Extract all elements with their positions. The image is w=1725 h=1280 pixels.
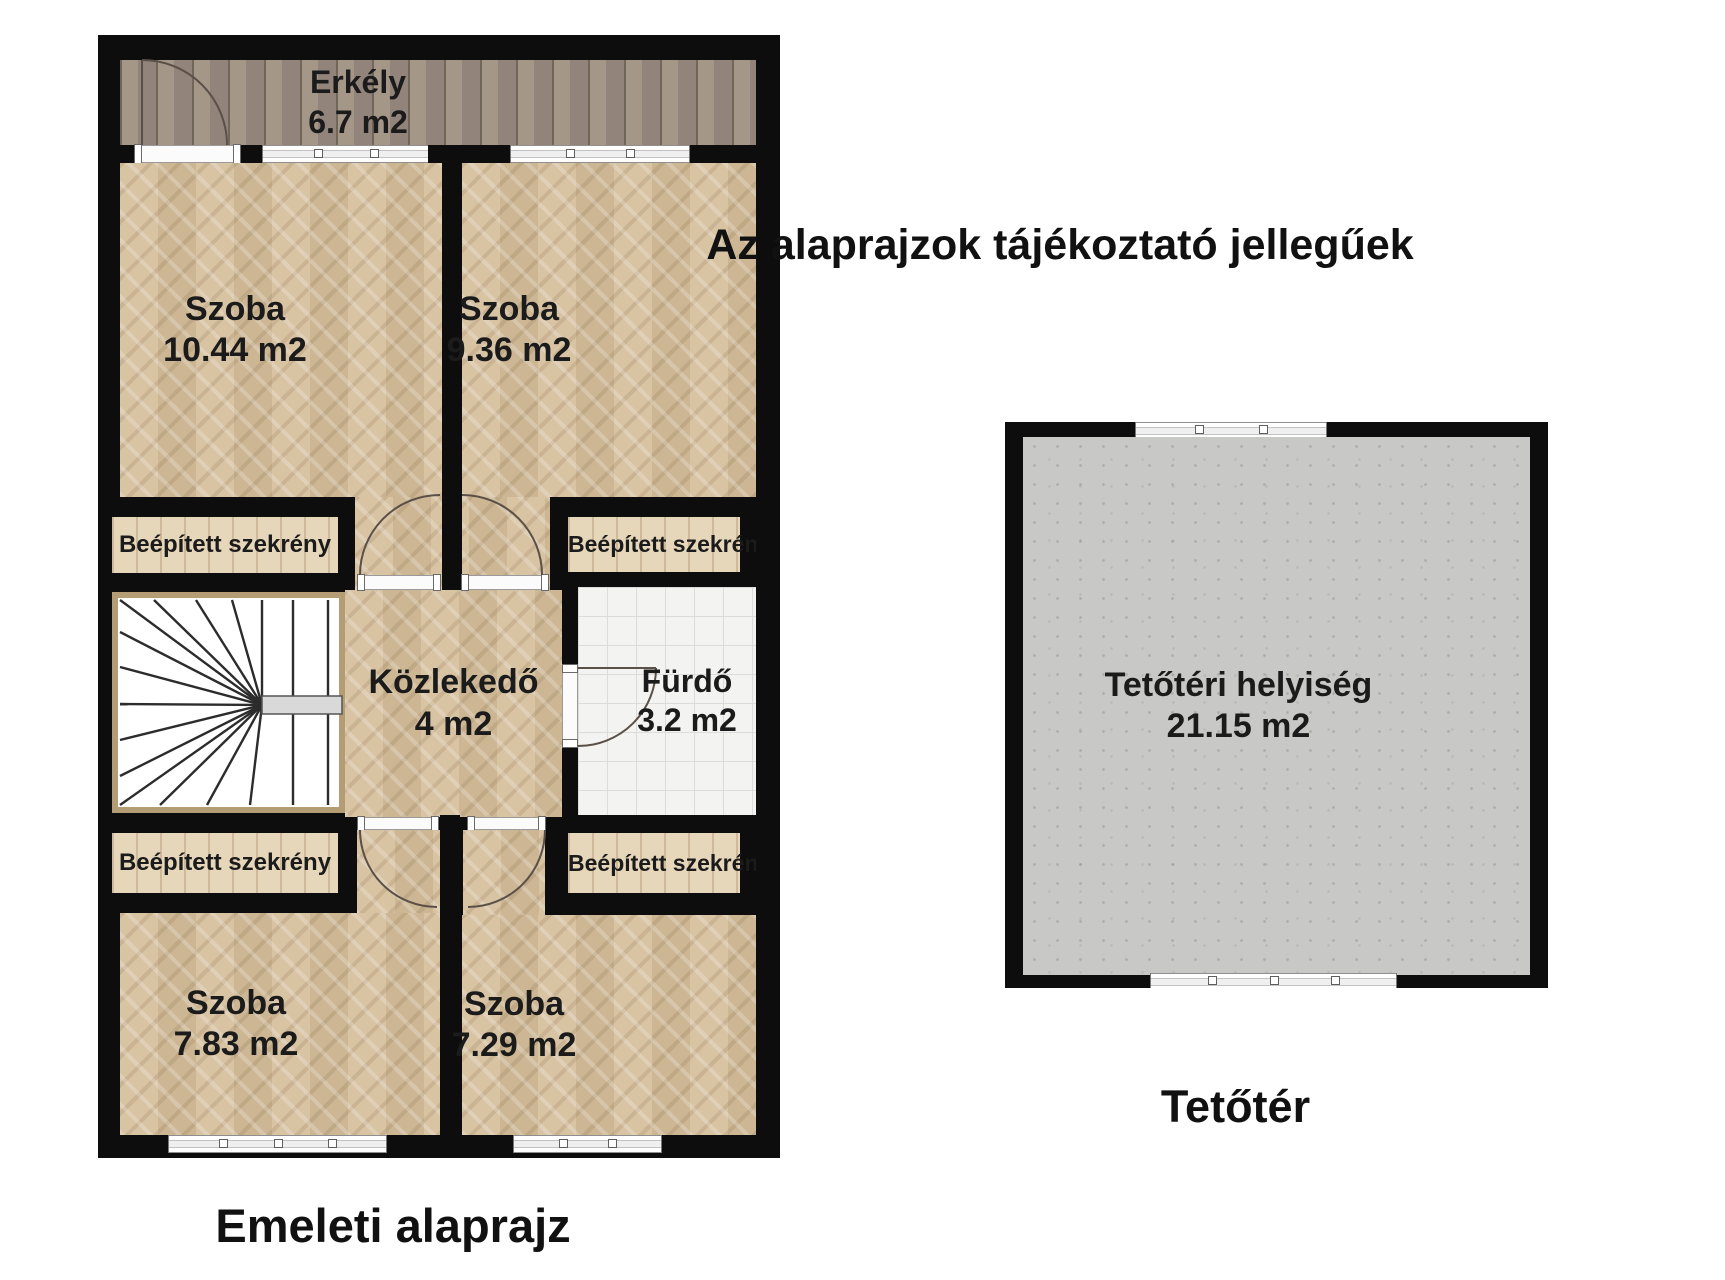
hallway-floor	[345, 590, 562, 817]
attic-caption: Tetőtér	[964, 1082, 1507, 1132]
bathroom-door-threshold	[562, 665, 578, 747]
door-threshold-room-bottom-right	[468, 817, 545, 830]
attic-room-floor	[1023, 437, 1530, 975]
window-mullion	[608, 1139, 617, 1148]
bathroom-floor	[578, 587, 756, 815]
room-bottom-left-window	[168, 1135, 387, 1153]
window-mullion	[626, 149, 635, 158]
door-threshold-room-top-right	[462, 575, 548, 590]
closet-top-right-floor	[568, 517, 740, 572]
window-mullion	[1195, 425, 1204, 434]
attic-window-top	[1135, 422, 1327, 437]
room-top-left-floor	[120, 163, 442, 497]
window-mullion	[274, 1139, 283, 1148]
balcony-door-threshold	[135, 145, 240, 163]
attic-window-bottom	[1150, 973, 1397, 988]
balcony-window-left	[262, 145, 430, 163]
room-bottom-left-door-area	[357, 830, 440, 915]
attic-plan: Tetőtéri helyiség 21.15 m2	[1005, 422, 1548, 988]
upper-floor-caption: Emeleti alaprajz	[52, 1200, 734, 1252]
window-mullion	[566, 149, 575, 158]
window-mullion	[1259, 425, 1268, 434]
room-bottom-left-floor	[120, 913, 440, 1135]
closet-top-left-floor	[112, 517, 338, 573]
balcony-window-right	[510, 145, 690, 163]
window-mullion	[370, 149, 379, 158]
window-mullion	[1270, 976, 1279, 985]
closet-bottom-left-floor	[112, 833, 338, 893]
room-bottom-right-floor	[462, 915, 756, 1135]
wall-divider-top	[442, 163, 462, 590]
room-bottom-right-door-area	[463, 830, 545, 915]
floorplan-page: Beépített szekrény Beépített szekrény Be…	[0, 0, 1725, 1280]
balcony-floor	[120, 60, 756, 145]
upper-floor-plan: Beépített szekrény Beépített szekrény Be…	[98, 35, 780, 1158]
window-mullion	[559, 1139, 568, 1148]
staircase-drawing	[112, 592, 345, 813]
room-bottom-right-window	[513, 1135, 662, 1153]
door-threshold-room-bottom-left	[358, 817, 438, 830]
window-mullion	[1331, 976, 1340, 985]
staircase	[112, 592, 345, 813]
window-mullion	[328, 1139, 337, 1148]
door-threshold-room-top-left	[358, 575, 440, 590]
window-mullion	[219, 1139, 228, 1148]
disclaimer-title: Az alaprajzok tájékoztató jellegűek	[700, 222, 1420, 269]
closet-bottom-right-floor	[568, 833, 740, 893]
window-mullion	[1208, 976, 1217, 985]
wall-pier-top-band	[428, 145, 505, 163]
wall-divider-bottom	[440, 815, 460, 1135]
window-mullion	[314, 149, 323, 158]
room-top-right-floor	[462, 163, 756, 497]
